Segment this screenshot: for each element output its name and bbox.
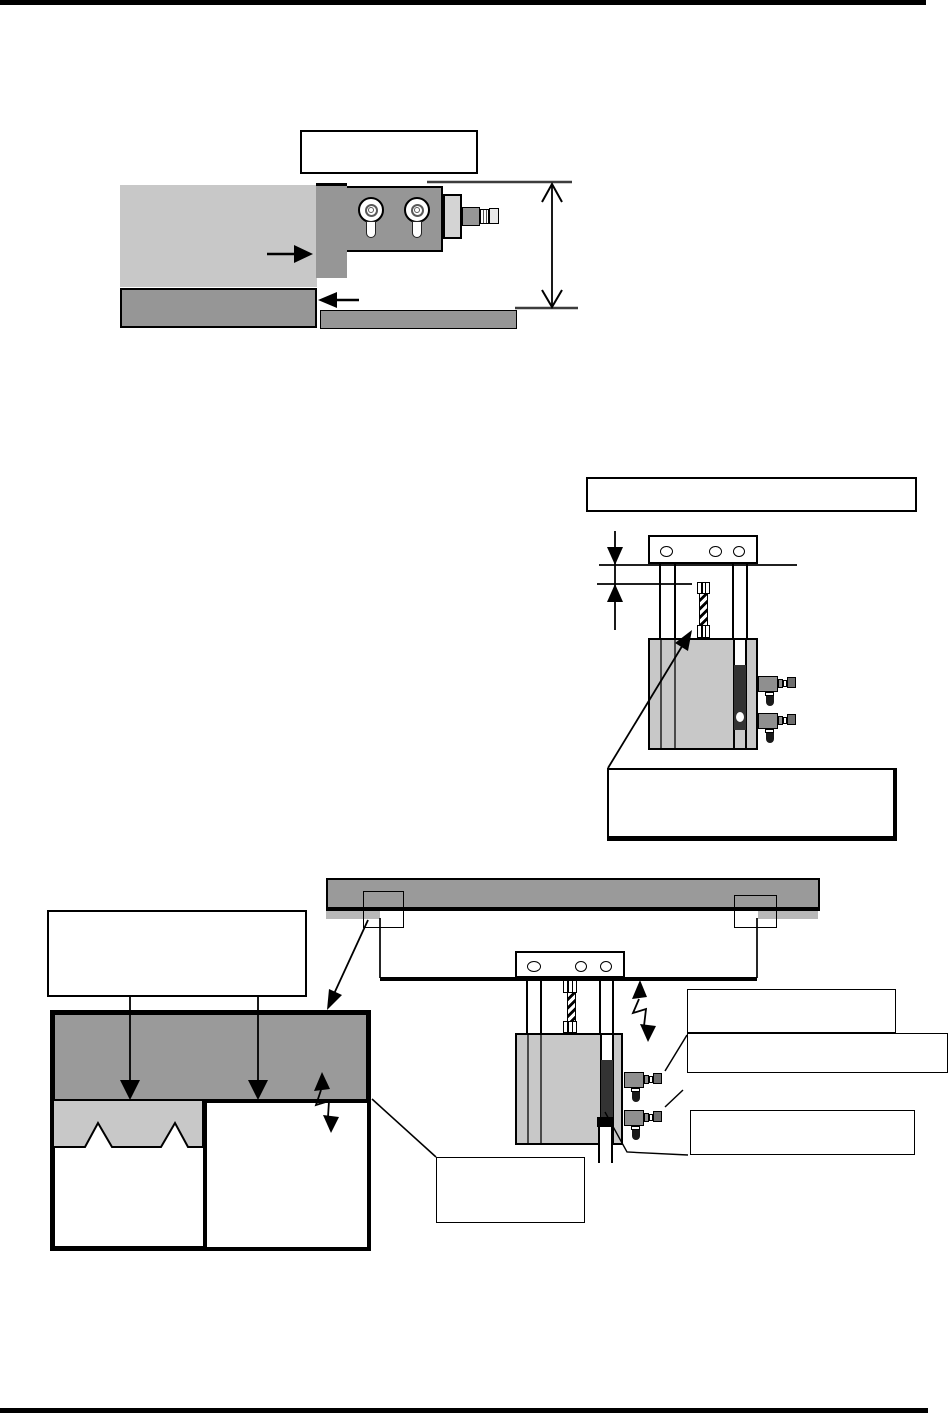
figure2-guide-rod [732, 564, 748, 638]
figure1-port-icon [404, 197, 430, 223]
figure1-callout-box [300, 130, 478, 174]
fitting-connector [653, 1111, 662, 1122]
figure3-callout-right-3 [690, 1110, 915, 1155]
fitting-knob [766, 696, 774, 706]
figure3-speed-controller-icon [624, 1110, 644, 1126]
figure1-port-icon [358, 197, 384, 223]
figure2-guide-rod [659, 564, 676, 638]
figure2-slot-gap [735, 640, 745, 665]
figure3-detail-table-fill [55, 1015, 366, 1100]
figure3-body-line [527, 1035, 529, 1143]
figure2-callout-header [586, 477, 917, 512]
figure1-mounting-bracket [316, 183, 347, 278]
figure1-rod-block [462, 207, 480, 226]
fitting-knob [632, 1092, 640, 1102]
figure1-bolt-nut [489, 208, 499, 224]
figure1-workpiece-block [120, 185, 317, 287]
figure2-speed-controller-icon [758, 713, 778, 729]
fitting-knob [632, 1130, 640, 1140]
port-dot-icon [414, 207, 420, 213]
page-bottom-rule [0, 1408, 928, 1413]
figure2-plate-hole [660, 546, 673, 557]
figure3-callout-left-table [47, 910, 307, 997]
figure2-body-line [674, 640, 676, 748]
figure2-rod-coupler-top [697, 582, 710, 594]
figure3-callout-right-2 [687, 1033, 948, 1073]
figure2-plate-hole [709, 546, 722, 557]
port-ring-icon [365, 204, 378, 217]
port-dot-icon [368, 207, 374, 213]
figure3-callout-lower-left [436, 1157, 585, 1223]
figure2-rod-coupler-bottom [697, 625, 710, 638]
figure2-body-line [660, 640, 662, 748]
figure3-body-line [540, 1035, 542, 1143]
figure3-slot-gap [602, 1035, 612, 1060]
figure1-bolt-thread [480, 209, 489, 224]
figure1-end-plate [443, 194, 462, 239]
figure2-speed-controller-icon [758, 676, 778, 692]
figure2-sensor-dot [736, 712, 744, 722]
figure3-sensor-slot [601, 1060, 613, 1117]
figure3-detail-inner-box [203, 1099, 371, 1251]
figure3-piston-rod [567, 993, 576, 1021]
figure3-highlight-rect [734, 895, 777, 928]
port-ring-icon [411, 204, 424, 217]
figure3-rod-coupler-bottom [563, 1021, 577, 1033]
figure3-stroke-arrow-icon [632, 980, 656, 1042]
figure3-rod-coupler-top [563, 980, 577, 993]
page-top-rule [0, 0, 926, 5]
figure3-leader-to-table [327, 920, 368, 1010]
figure3-plate-hole [527, 961, 541, 972]
figure1-port-lug [366, 221, 376, 238]
figure2-callout-footer [607, 768, 897, 841]
figure3-highlight-rect [363, 891, 404, 928]
figure3-stopper-block [597, 1117, 614, 1127]
figure3-stopper-shaft [598, 1127, 613, 1163]
figure2-plate-hole [733, 546, 745, 557]
figure3-callout-right-1 [687, 989, 896, 1033]
fitting-connector [653, 1073, 662, 1084]
page [0, 0, 949, 1415]
figure2-piston-rod [699, 594, 708, 625]
fitting-connector [787, 677, 796, 688]
fitting-knob [766, 733, 774, 743]
figure1-port-lug [412, 221, 422, 238]
figure1-step-block [120, 288, 317, 328]
figure1-base-bar [320, 310, 517, 329]
fitting-connector [787, 714, 796, 725]
figure3-speed-controller-icon [624, 1072, 644, 1088]
figure1-datum-arrow-icon [318, 292, 359, 308]
figure3-guide-rod [599, 978, 614, 1033]
figure3-plate-hole [575, 961, 587, 972]
figure3-plate-hole [600, 961, 612, 972]
figure3-guide-rod [526, 978, 542, 1033]
